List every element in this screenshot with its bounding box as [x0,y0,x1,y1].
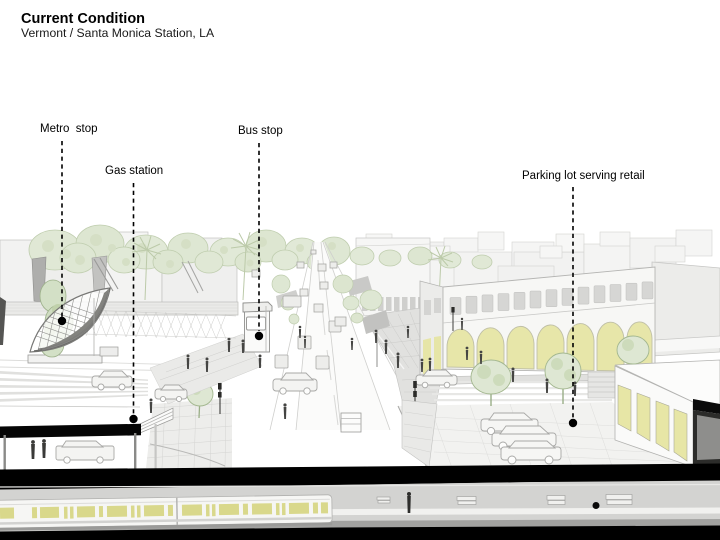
svg-text:Metro stop: Metro stop [40,123,98,135]
svg-text:Vermont / Santa Monica Station: Vermont / Santa Monica Station, LA [21,26,215,40]
svg-text:Current Condition: Current Condition [21,11,145,27]
svg-text:Bus stop: Bus stop [238,125,283,137]
svg-text:Gas station: Gas station [105,165,163,177]
svg-text:Parking lot serving retail: Parking lot serving retail [522,170,645,182]
